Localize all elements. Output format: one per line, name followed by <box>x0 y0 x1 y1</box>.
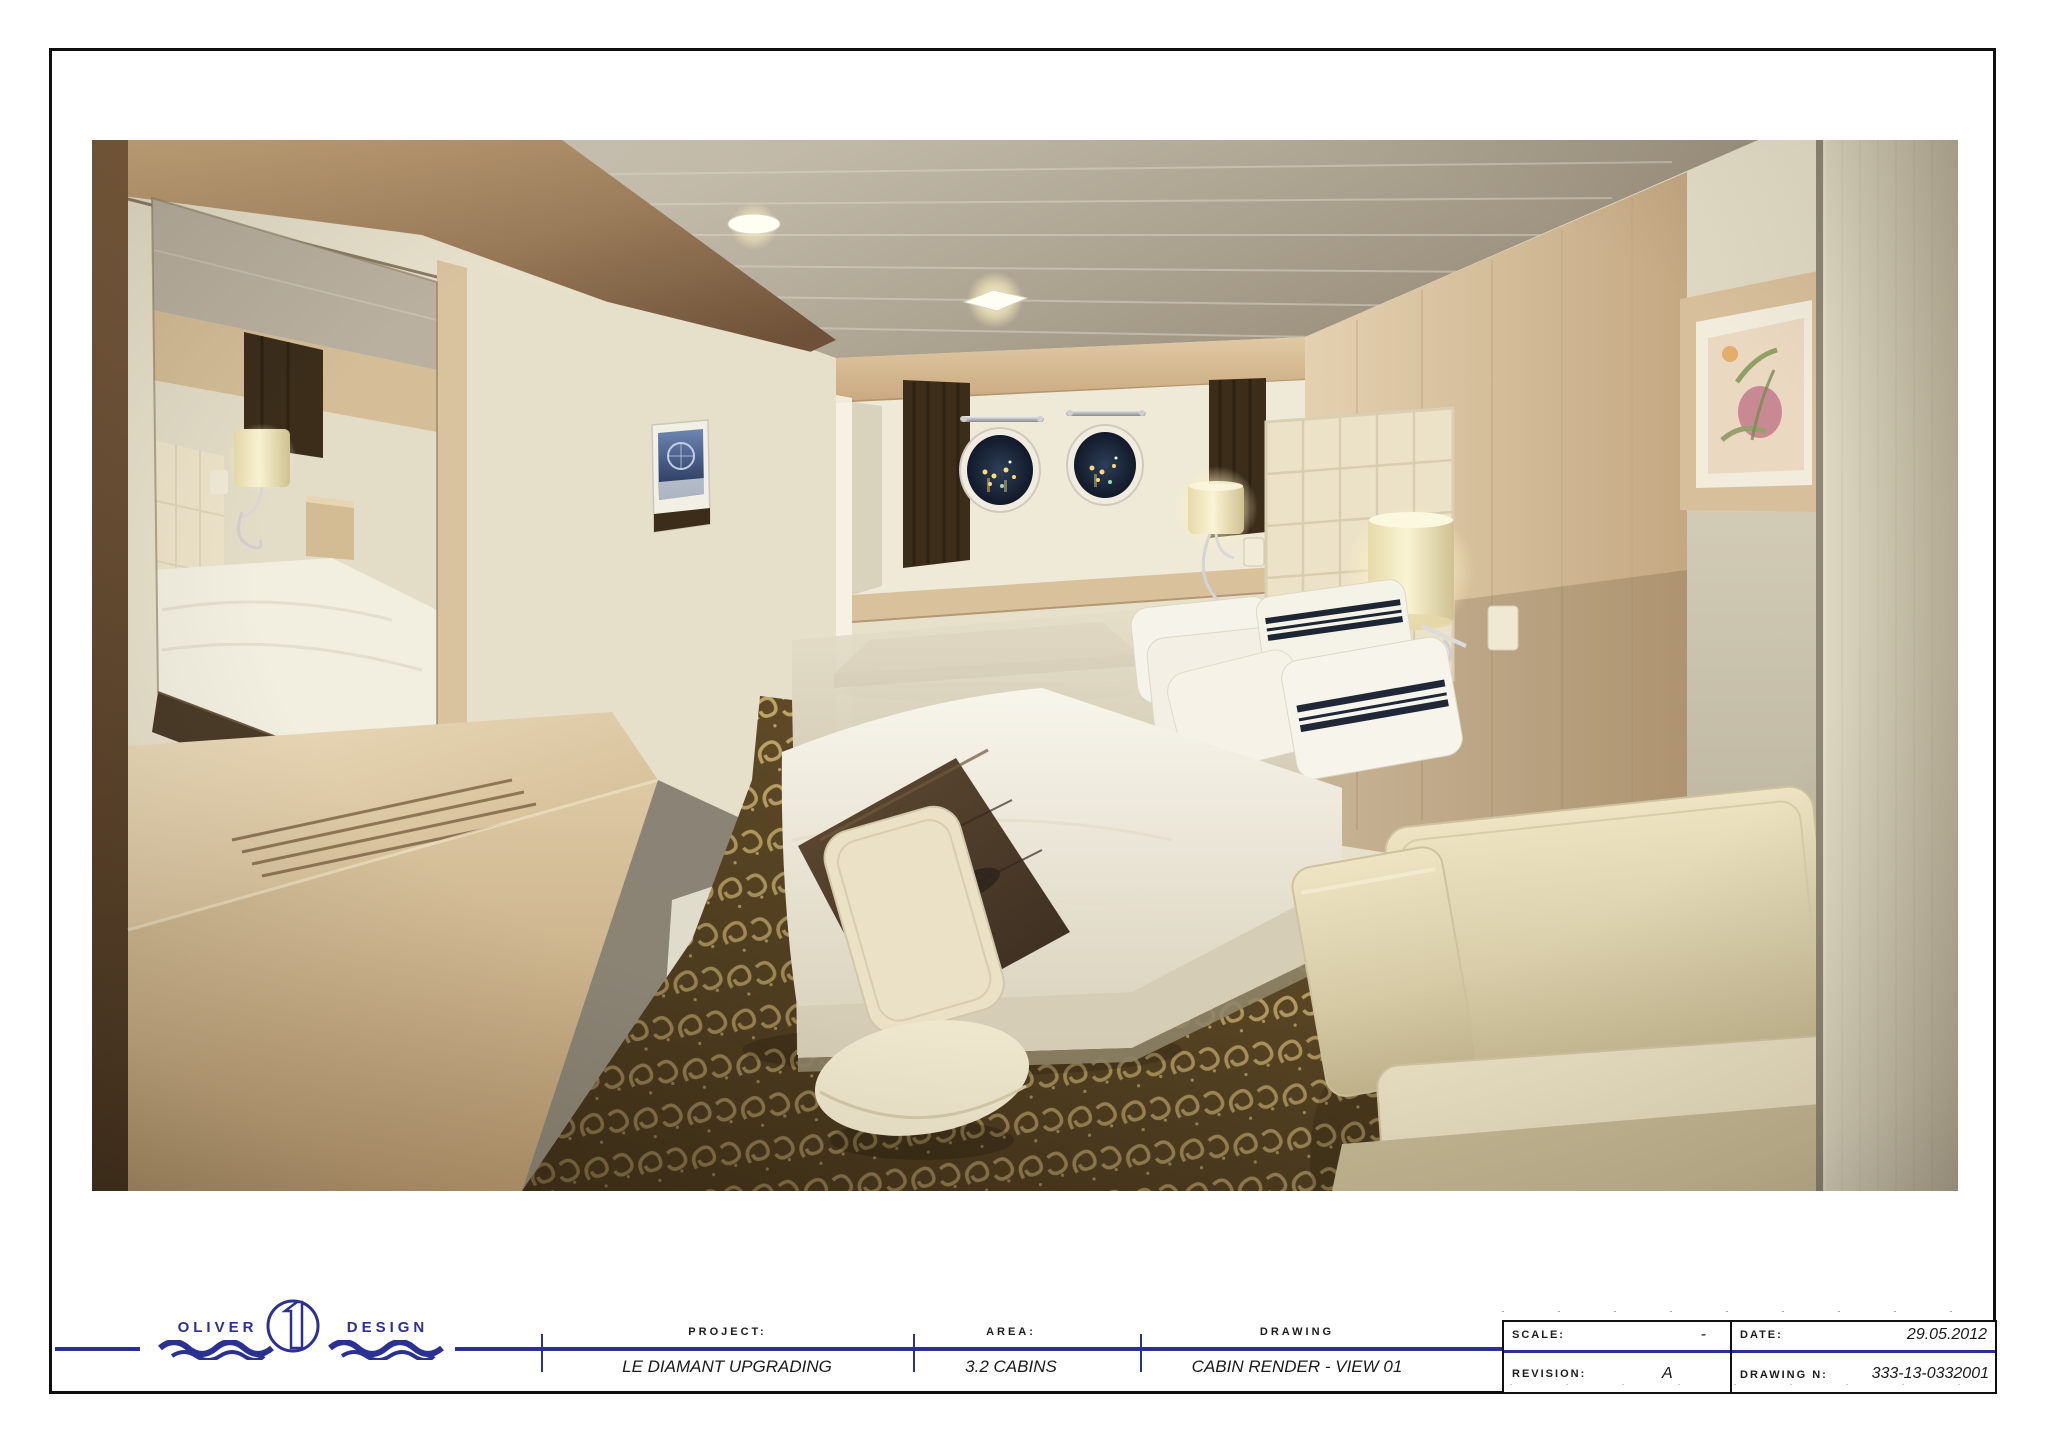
vignette-overlay <box>92 140 1958 1191</box>
scale-label: SCALE: <box>1512 1329 1565 1341</box>
revision-value: A <box>1662 1365 1673 1383</box>
crop-ticks-bottom <box>1510 1384 1990 1385</box>
cabin-render-image <box>92 140 1958 1191</box>
info-box-rule <box>1504 1350 1995 1353</box>
drawing-number-value: 333-13-0332001 <box>1872 1365 1989 1383</box>
date-value: 29.05.2012 <box>1797 1326 1987 1344</box>
drawing-sheet: OLIVER DESIGN PROJECT: LE DIAMANT UPGRAD… <box>0 0 2048 1448</box>
logo-word-design: DESIGN <box>325 1319 450 1336</box>
revision-label: REVISION: <box>1512 1368 1586 1380</box>
logo-word-oliver: OLIVER <box>155 1319 280 1336</box>
area-label: AREA: <box>913 1326 1109 1338</box>
project-value: LE DIAMANT UPGRADING <box>567 1357 887 1377</box>
cabin-render-svg <box>92 140 1958 1191</box>
logo-wave-left <box>158 1340 276 1360</box>
area-value: 3.2 CABINS <box>911 1357 1111 1377</box>
drawing-info-box: SCALE: - DATE: 29.05.2012 REVISION: A DR… <box>1502 1320 1997 1394</box>
scale-value: - <box>1644 1326 1706 1344</box>
drawing-number-label: DRAWING N: <box>1740 1366 1828 1381</box>
project-label: PROJECT: <box>580 1326 875 1338</box>
drawing-value: CABIN RENDER - VIEW 01 <box>1137 1357 1457 1377</box>
title-rule-left <box>55 1347 140 1351</box>
drawing-label: DRAWING <box>1140 1326 1454 1338</box>
crop-ticks-top <box>1502 1311 1997 1312</box>
date-label: DATE: <box>1740 1329 1783 1341</box>
drawing-number-row: DRAWING N: 333-13-0332001 <box>1740 1365 1989 1383</box>
logo-wave-right <box>328 1340 446 1360</box>
info-box-divider <box>1730 1322 1732 1392</box>
section-divider-1 <box>541 1334 543 1372</box>
